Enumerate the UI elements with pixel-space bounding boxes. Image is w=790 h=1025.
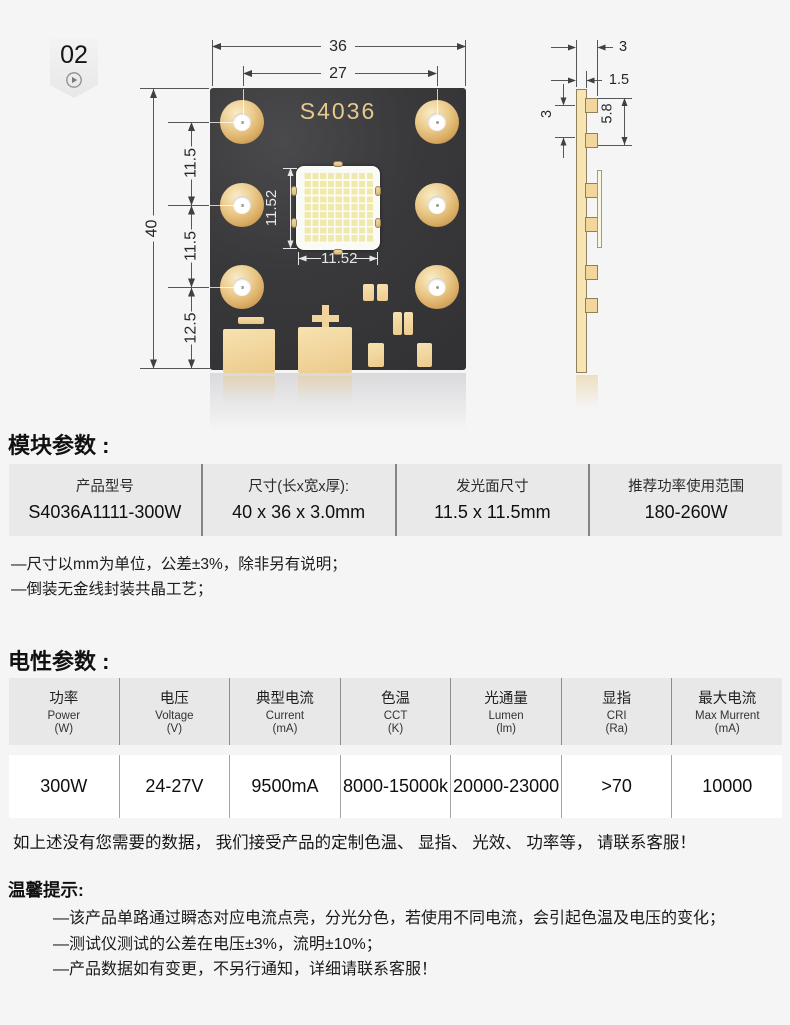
- solder-pad-small: [377, 284, 388, 301]
- solder-pad-small: [363, 284, 374, 301]
- dim-overall-height: 40: [144, 216, 163, 242]
- header-unit: (W): [9, 723, 119, 735]
- header-cell-cct: 色温 CCT (K): [340, 678, 451, 745]
- side-reflection: [576, 375, 598, 409]
- electrical-table-header: 功率 Power (W) 电压 Voltage (V) 典型电流 Current…: [9, 678, 782, 745]
- header-unit: (mA): [230, 723, 340, 735]
- side-view-pad: [585, 298, 598, 313]
- led-chip-grid: [303, 173, 373, 243]
- led-emitting-surface: [296, 166, 380, 250]
- header-en: Max Murrent: [672, 710, 782, 722]
- pad-reflection: [298, 376, 352, 402]
- side-view-pad: [585, 133, 598, 148]
- table-cell-emitting-size: 发光面尺寸 11.5 x 11.5mm: [395, 464, 589, 536]
- header-unit: (Ra): [562, 723, 672, 735]
- header-cell-lumen: 光通量 Lumen (lm): [450, 678, 561, 745]
- solder-bump: [333, 161, 343, 167]
- header-unit: (K): [341, 723, 451, 735]
- solder-pad-small: [417, 343, 432, 367]
- board-reflection: [210, 373, 466, 431]
- value-cell-lumen: 20000-23000: [450, 755, 561, 818]
- column-header: 推荐功率使用范围: [590, 475, 782, 496]
- table-cell-model: 产品型号 S4036A1111-300W: [9, 464, 201, 536]
- header-cn: 显指: [562, 687, 672, 708]
- customization-note: 如上述没有您需要的数据， 我们接受产品的定制色温、 显指、 光效、 功率等， 请…: [13, 829, 696, 853]
- solder-bump: [375, 218, 381, 228]
- dim-led-width: 11.52: [321, 251, 355, 268]
- value-cell-cct: 8000-15000k: [340, 755, 451, 818]
- header-cn: 电压: [120, 687, 230, 708]
- dim-side-pad-pitch: 3: [540, 105, 556, 123]
- cell-value: S4036A1111-300W: [9, 502, 201, 523]
- value-cell-voltage: 24-27V: [119, 755, 230, 818]
- product-spec-page: 02 S4036: [0, 0, 790, 1025]
- dim-led-height: 11.52: [264, 188, 280, 228]
- solder-pad-small: [393, 312, 402, 335]
- header-unit: (V): [120, 723, 230, 735]
- header-en: Voltage: [120, 710, 230, 722]
- column-header: 尺寸(长x宽x厚):: [203, 475, 395, 496]
- tips-title: 温馨提示:: [8, 877, 84, 902]
- header-cell-cri: 显指 CRI (Ra): [561, 678, 672, 745]
- header-cn: 典型电流: [230, 687, 340, 708]
- dim-row-pitch-1: 11.5: [183, 147, 201, 180]
- module-section-title: 模块参数 :: [8, 428, 109, 460]
- negative-electrode-mark: [238, 317, 264, 324]
- technical-drawing: S4036: [0, 0, 790, 440]
- solder-pad-small: [404, 312, 413, 335]
- header-cn: 色温: [341, 687, 451, 708]
- cell-value: 40 x 36 x 3.0mm: [203, 502, 395, 523]
- table-cell-size: 尺寸(长x宽x厚): 40 x 36 x 3.0mm: [201, 464, 395, 536]
- header-en: Lumen: [451, 710, 561, 722]
- tip-line: —测试仪测试的公差在电压±3%，流明±10%；: [53, 932, 725, 958]
- header-en: Current: [230, 710, 340, 722]
- header-cell-voltage: 电压 Voltage (V): [119, 678, 230, 745]
- mounting-hole: [220, 100, 264, 144]
- solder-pad-small: [368, 343, 384, 367]
- dim-side-led-zone: 5.8: [601, 100, 618, 128]
- mounting-hole: [415, 265, 459, 309]
- header-unit: (mA): [672, 723, 782, 735]
- dim-side-thickness: 3: [616, 40, 630, 56]
- note-line: —倒装无金线封装共晶工艺；: [11, 577, 347, 602]
- tip-line: —该产品单路通过瞬态对应电流点亮，分光分色，若使用不同电流，会引起色温及电压的变…: [53, 906, 725, 932]
- value-cell-max-current: 10000: [671, 755, 782, 818]
- header-unit: (lm): [451, 723, 561, 735]
- module-notes: —尺寸以mm为单位，公差±3%，除非另有说明； —倒装无金线封装共晶工艺；: [11, 552, 347, 602]
- dim-side-substrate: 1.5: [606, 73, 632, 89]
- dim-hole-pitch-h: 27: [321, 65, 355, 83]
- value-cell-power: 300W: [9, 755, 119, 818]
- dim-row-pitch-2: 11.5: [183, 230, 201, 263]
- header-en: CRI: [562, 710, 672, 722]
- header-cell-current: 典型电流 Current (mA): [229, 678, 340, 745]
- dim-bottom-offset: 12.5: [183, 312, 201, 345]
- mounting-hole: [220, 265, 264, 309]
- header-cell-max-current: 最大电流 Max Murrent (mA): [671, 678, 782, 745]
- header-cn: 光通量: [451, 687, 561, 708]
- mounting-hole: [415, 183, 459, 227]
- column-header: 发光面尺寸: [397, 475, 589, 496]
- header-en: CCT: [341, 710, 451, 722]
- solder-pad-positive: [298, 327, 352, 373]
- side-view-pad: [585, 265, 598, 280]
- solder-pad-negative: [223, 329, 275, 373]
- mounting-hole: [415, 100, 459, 144]
- value-cell-cri: >70: [561, 755, 672, 818]
- header-cn: 功率: [9, 687, 119, 708]
- mounting-hole: [220, 183, 264, 227]
- value-cell-current: 9500mA: [229, 755, 340, 818]
- pad-reflection: [223, 376, 275, 402]
- dim-overall-width: 36: [321, 38, 355, 56]
- side-view-pad: [585, 98, 598, 113]
- electrical-table-values: 300W 24-27V 9500mA 8000-15000k 20000-230…: [9, 755, 782, 818]
- cell-value: 11.5 x 11.5mm: [397, 502, 589, 523]
- header-en: Power: [9, 710, 119, 722]
- solder-bump: [375, 186, 381, 196]
- header-cell-power: 功率 Power (W): [9, 678, 119, 745]
- tip-line: —产品数据如有变更，不另行通知，详细请联系客服！: [53, 957, 725, 983]
- side-view-led-protrusion: [597, 170, 602, 248]
- note-line: —尺寸以mm为单位，公差±3%，除非另有说明；: [11, 552, 347, 577]
- solder-bump: [291, 186, 297, 196]
- cell-value: 180-260W: [590, 502, 782, 523]
- table-cell-power-range: 推荐功率使用范围 180-260W: [588, 464, 782, 536]
- header-cn: 最大电流: [672, 687, 782, 708]
- module-parameters-table: 产品型号 S4036A1111-300W 尺寸(长x宽x厚): 40 x 36 …: [9, 464, 782, 536]
- electrical-section-title: 电性参数 :: [8, 644, 109, 676]
- tips-list: —该产品单路通过瞬态对应电流点亮，分光分色，若使用不同电流，会引起色温及电压的变…: [53, 906, 725, 983]
- column-header: 产品型号: [9, 475, 201, 496]
- solder-bump: [291, 218, 297, 228]
